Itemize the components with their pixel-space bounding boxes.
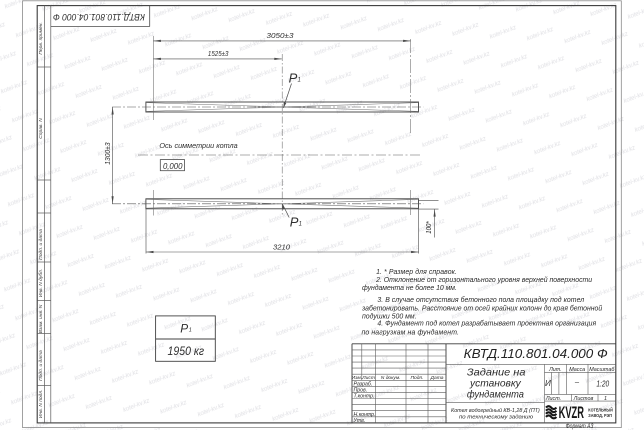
svg-text:Ось симметрии котла: Ось симметрии котла xyxy=(159,141,237,150)
svg-text:1: 1 xyxy=(299,222,302,228)
svg-text:1: 1 xyxy=(298,77,301,83)
svg-text:установку: установку xyxy=(469,379,521,390)
svg-text:1: 1 xyxy=(604,396,607,402)
svg-text:P: P xyxy=(290,215,299,230)
svg-text:Н.контр.: Н.контр. xyxy=(354,412,376,418)
svg-text:ЗАВОД, РЭП: ЗАВОД, РЭП xyxy=(588,413,612,418)
svg-text:1: 1 xyxy=(189,328,192,334)
svg-text:Листов: Листов xyxy=(573,396,594,402)
svg-text:Подп. и дата: Подп. и дата xyxy=(38,229,44,260)
svg-text:фундамента не более 10 мм.: фундамента не более 10 мм. xyxy=(362,284,457,292)
svg-text:Справ. N: Справ. N xyxy=(38,118,44,139)
svg-text:KVZR: KVZR xyxy=(559,404,584,422)
svg-text:по нагрузкам на фундамент.: по нагрузкам на фундамент. xyxy=(362,329,459,337)
svg-text:Подп. и дата: Подп. и дата xyxy=(38,350,44,381)
svg-text:фундамента: фундамента xyxy=(467,389,524,401)
svg-text:3210: 3210 xyxy=(273,243,291,252)
svg-text:КОТЕЛЬНЫЙ: КОТЕЛЬНЫЙ xyxy=(588,406,613,413)
svg-text:0,000: 0,000 xyxy=(163,161,183,171)
svg-text:N докум.: N докум. xyxy=(381,375,401,381)
svg-text:КВТД.110.801.04.000 Ф: КВТД.110.801.04.000 Ф xyxy=(53,12,145,22)
svg-text:Формат А3: Формат А3 xyxy=(566,424,594,430)
svg-text:P: P xyxy=(289,70,298,85)
svg-text:Разраб.: Разраб. xyxy=(354,381,373,387)
svg-text:3050±3: 3050±3 xyxy=(267,31,295,40)
svg-text:по техническому заданию: по техническому заданию xyxy=(459,415,533,421)
svg-text:Масса: Масса xyxy=(569,367,585,373)
svg-text:Лист: Лист xyxy=(361,375,375,381)
svg-text:Котел водогрейный КВ-1,28 Д (: Котел водогрейный КВ-1,28 Д (ПТ) xyxy=(451,407,540,414)
svg-text:Лист.: Лист. xyxy=(545,396,561,402)
svg-text:Взам. инв. N: Взам. инв. N xyxy=(38,304,44,333)
svg-text:100*: 100* xyxy=(426,221,433,234)
svg-text:КВТД.110.801.04.000 Ф: КВТД.110.801.04.000 Ф xyxy=(464,347,608,361)
svg-text:Масштаб: Масштаб xyxy=(589,367,615,373)
svg-text:3. В случае отсутствия бетонн: 3. В случае отсутствия бетонного пола пл… xyxy=(377,296,584,304)
svg-text:Лит.: Лит. xyxy=(548,367,562,373)
svg-text:Дата: Дата xyxy=(430,375,444,381)
svg-text:4. Фундамент под котел разраб: 4. Фундамент под котел разрабатывает про… xyxy=(377,320,596,328)
svg-text:2. Отклонение от горизонтальн: 2. Отклонение от горизонтального уровня … xyxy=(375,276,592,284)
svg-text:Т.контр.: Т.контр. xyxy=(354,394,375,400)
svg-text:–: – xyxy=(574,378,580,387)
svg-text:1950 кг: 1950 кг xyxy=(168,346,205,358)
svg-text:Подп.: Подп. xyxy=(410,375,423,381)
svg-text:Утв.: Утв. xyxy=(354,418,366,424)
svg-text:1525±3: 1525±3 xyxy=(208,49,229,58)
svg-text:1. * Размер для справок.: 1. * Размер для справок. xyxy=(376,268,457,276)
svg-text:Пров.: Пров. xyxy=(354,387,368,393)
svg-text:1:20: 1:20 xyxy=(596,379,609,389)
svg-text:Перв. примен.: Перв. примен. xyxy=(38,22,44,55)
svg-text:подушки 500 мм.: подушки 500 мм. xyxy=(362,312,417,320)
svg-text:Инв. N дубл.: Инв. N дубл. xyxy=(38,269,44,297)
svg-text:Инв. N подл.: Инв. N подл. xyxy=(38,390,44,419)
svg-text:Изм.: Изм. xyxy=(352,375,362,381)
svg-text:P: P xyxy=(180,321,188,335)
svg-text:Задание на: Задание на xyxy=(467,368,526,379)
svg-text:И: И xyxy=(545,379,551,388)
svg-text:1300±3: 1300±3 xyxy=(103,142,112,164)
svg-text:забетонировать. Расстояние от: забетонировать. Расстояние от осей крайн… xyxy=(361,304,602,312)
